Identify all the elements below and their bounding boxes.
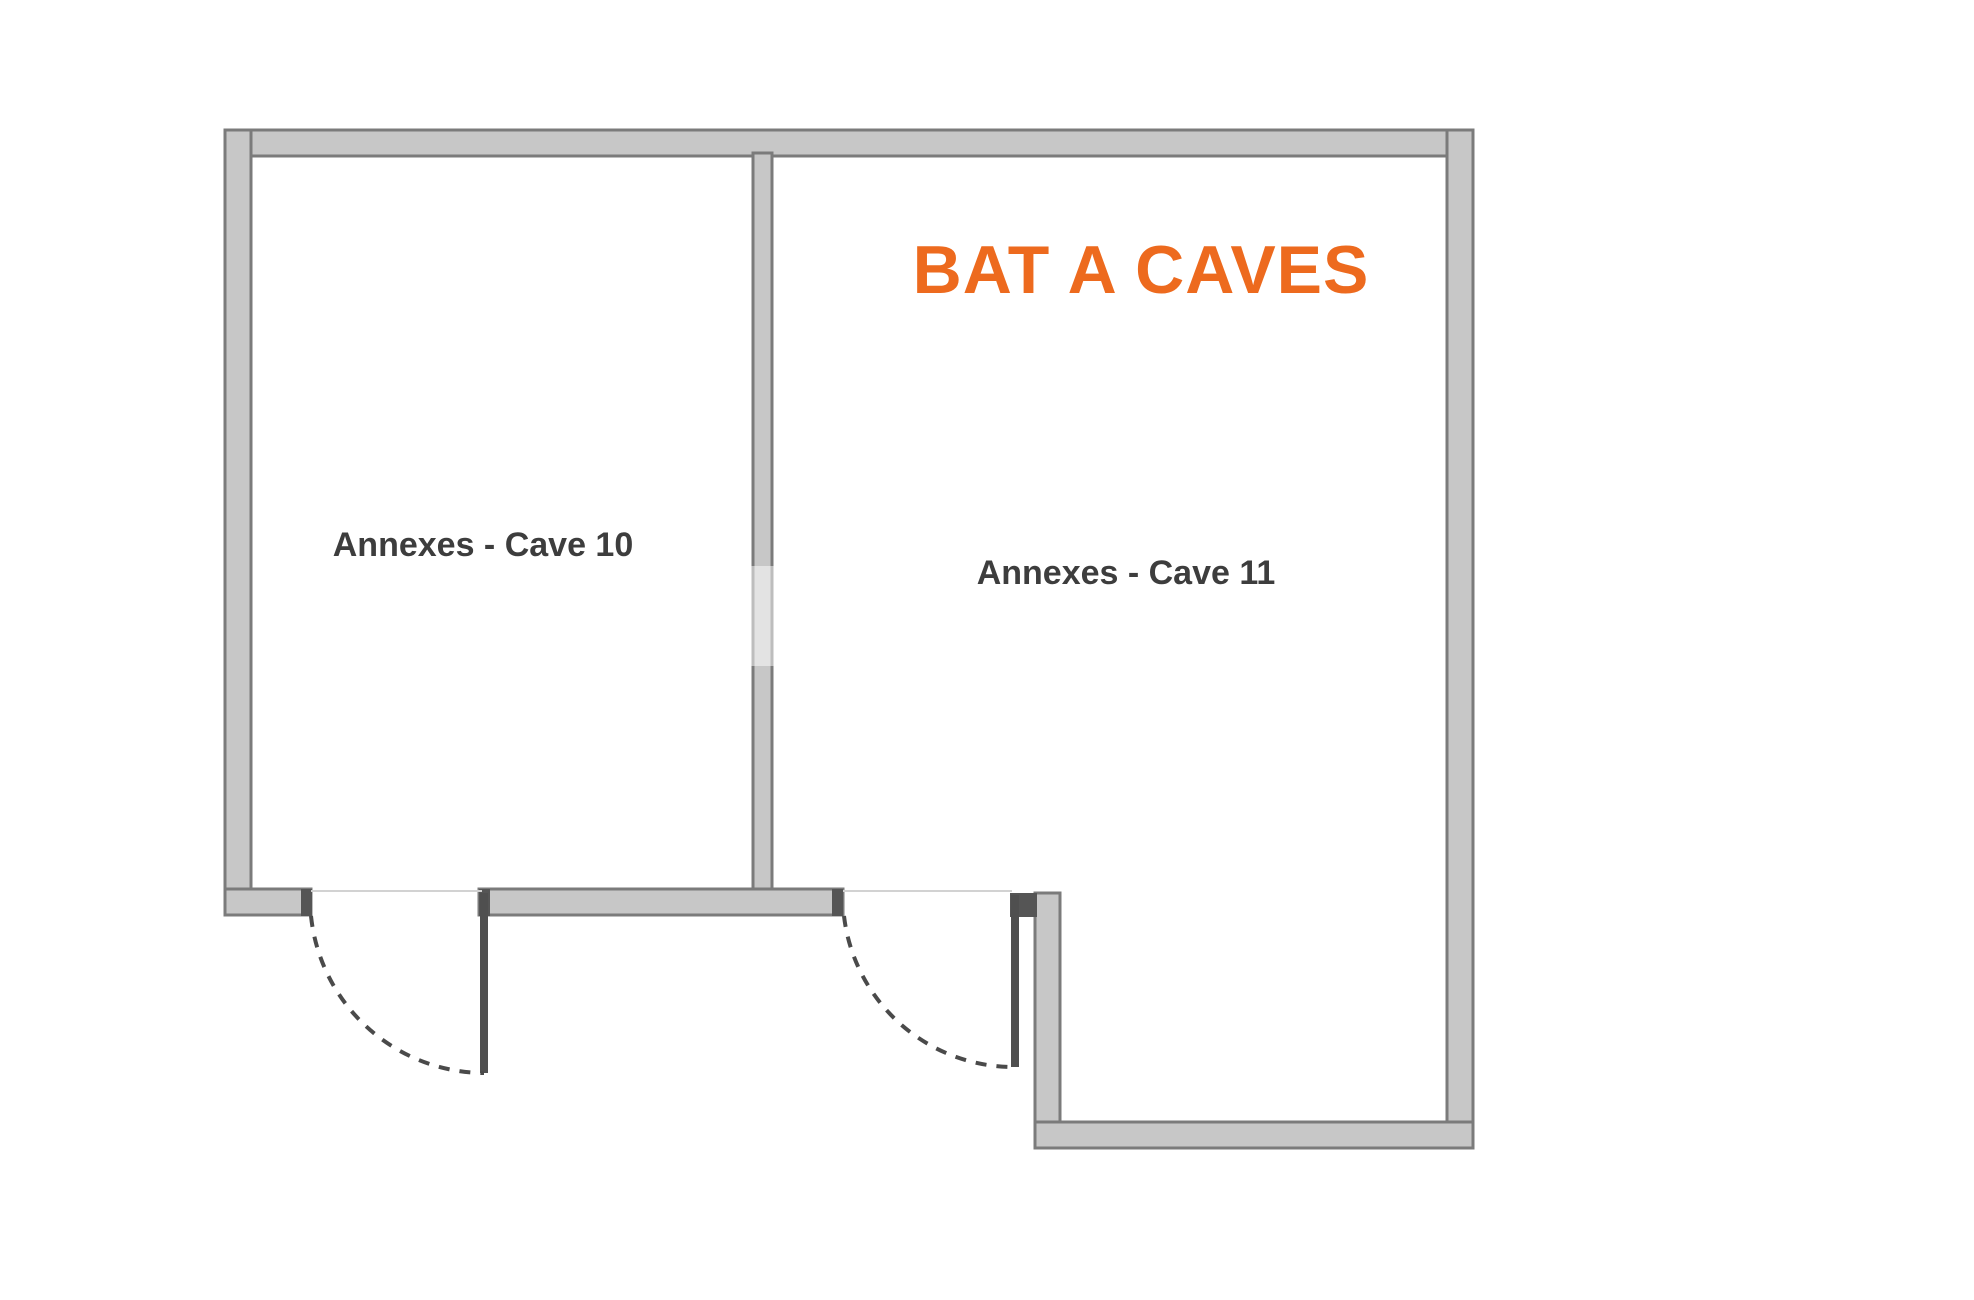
- door-leaves: [484, 893, 1015, 1073]
- wall-step-vertical: [1035, 893, 1060, 1148]
- wall-divider: [753, 153, 772, 889]
- door-swings: [311, 916, 1015, 1073]
- wall-right: [1447, 130, 1473, 1148]
- building-title: BAT A CAVES: [913, 232, 1370, 308]
- jamb-cap-door2-left: [832, 889, 843, 916]
- wall-left: [225, 130, 251, 915]
- wall-bottom-left-stub: [225, 889, 311, 915]
- wall-top: [225, 130, 1473, 156]
- room-label-cave-10: Annexes - Cave 10: [333, 526, 634, 564]
- wall-bottom-right: [1035, 1122, 1473, 1148]
- watermark-artifact: [751, 566, 774, 666]
- floor-plan-canvas: BAT A CAVES Annexes - Cave 10 Annexes - …: [0, 0, 1974, 1300]
- door-swing-arc-cave11: [844, 916, 1015, 1067]
- room-cave-10-area: [251, 156, 753, 889]
- room-label-cave-11: Annexes - Cave 11: [977, 554, 1276, 592]
- wall-cave10-bottom: [479, 889, 843, 915]
- door-swing-arc-cave10: [311, 916, 484, 1073]
- jamb-cap-door1-left: [301, 889, 312, 916]
